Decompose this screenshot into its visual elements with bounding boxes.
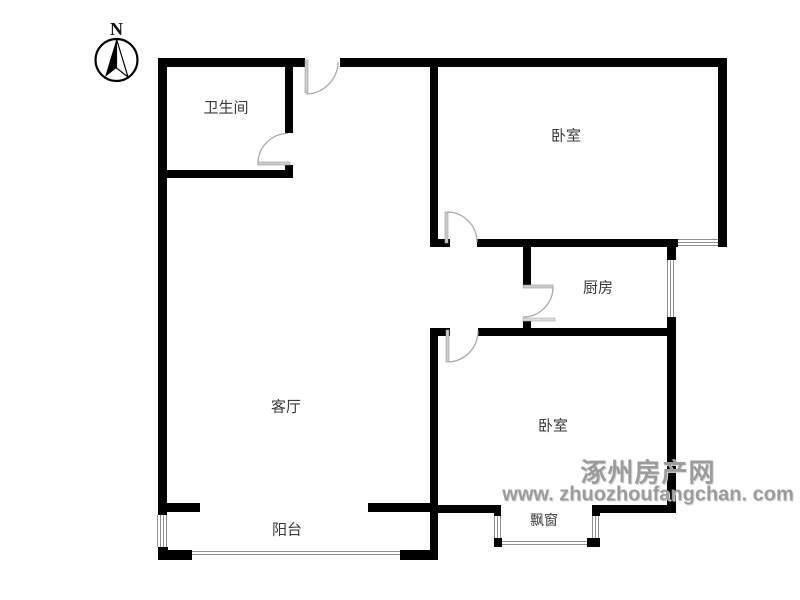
room-label-balcony: 阳台 [272, 519, 302, 540]
window-flue-niche [678, 239, 718, 247]
wall-bathroom-right-upper [285, 67, 293, 133]
wall-bedroom-bottom-left [430, 328, 438, 560]
bay-window-right-glass [592, 516, 600, 538]
room-label-bedroom-bottom: 卧室 [538, 415, 568, 436]
wall-kitchen-right-upper [667, 247, 676, 260]
wall-kitchen-left-upper [523, 247, 531, 288]
bay-window-bottom-glass [502, 541, 587, 547]
window-kitchen [667, 260, 676, 317]
room-label-kitchen: 厨房 [583, 277, 613, 298]
wall-livingroom-bottom-left [158, 503, 200, 512]
room-label-bay-window: 飘窗 [530, 510, 558, 530]
room-label-bedroom-top: 卧室 [551, 125, 581, 146]
room-label-living-room: 客厅 [271, 396, 301, 417]
kitchen-door-arc [521, 284, 561, 324]
watermark-site-url: www. zhuozhoufangchan. com [502, 484, 793, 507]
wall-top-right [340, 58, 727, 67]
north-compass-icon: N [92, 16, 142, 86]
wall-top-left [158, 58, 305, 67]
bay-window-right-jamb [592, 505, 600, 516]
window-balcony-bottom [192, 551, 400, 557]
bay-window-left-jamb [494, 505, 501, 516]
bedroom-bottom-door-arc [444, 328, 480, 364]
entrance-door-arc [300, 55, 345, 100]
room-label-bathroom: 卫生间 [203, 97, 248, 118]
bay-window-corner-br [587, 538, 600, 547]
wall-bedroom-top-left [430, 67, 438, 247]
floor-plan: N [0, 0, 800, 600]
wall-left-outer [158, 58, 167, 515]
window-balcony-left [157, 515, 167, 547]
bay-window-corner-bl [494, 538, 502, 547]
wall-balcony-bottom-right [400, 550, 438, 560]
wall-bedroom-bottom-south-left [436, 505, 500, 513]
wall-bedroom-bottom-top [478, 328, 668, 336]
compass-n-label: N [110, 19, 123, 39]
bathroom-door-arc [254, 128, 296, 170]
bay-window-left-glass [494, 516, 501, 538]
wall-bedroom-top-bottom [477, 239, 678, 247]
wall-right-outer [718, 58, 727, 247]
wall-livingroom-bottom-right [368, 503, 438, 512]
wall-bathroom-bottom [158, 170, 293, 178]
bedroom-top-door-arc [443, 210, 479, 246]
wall-balcony-bottom-left [158, 550, 192, 560]
